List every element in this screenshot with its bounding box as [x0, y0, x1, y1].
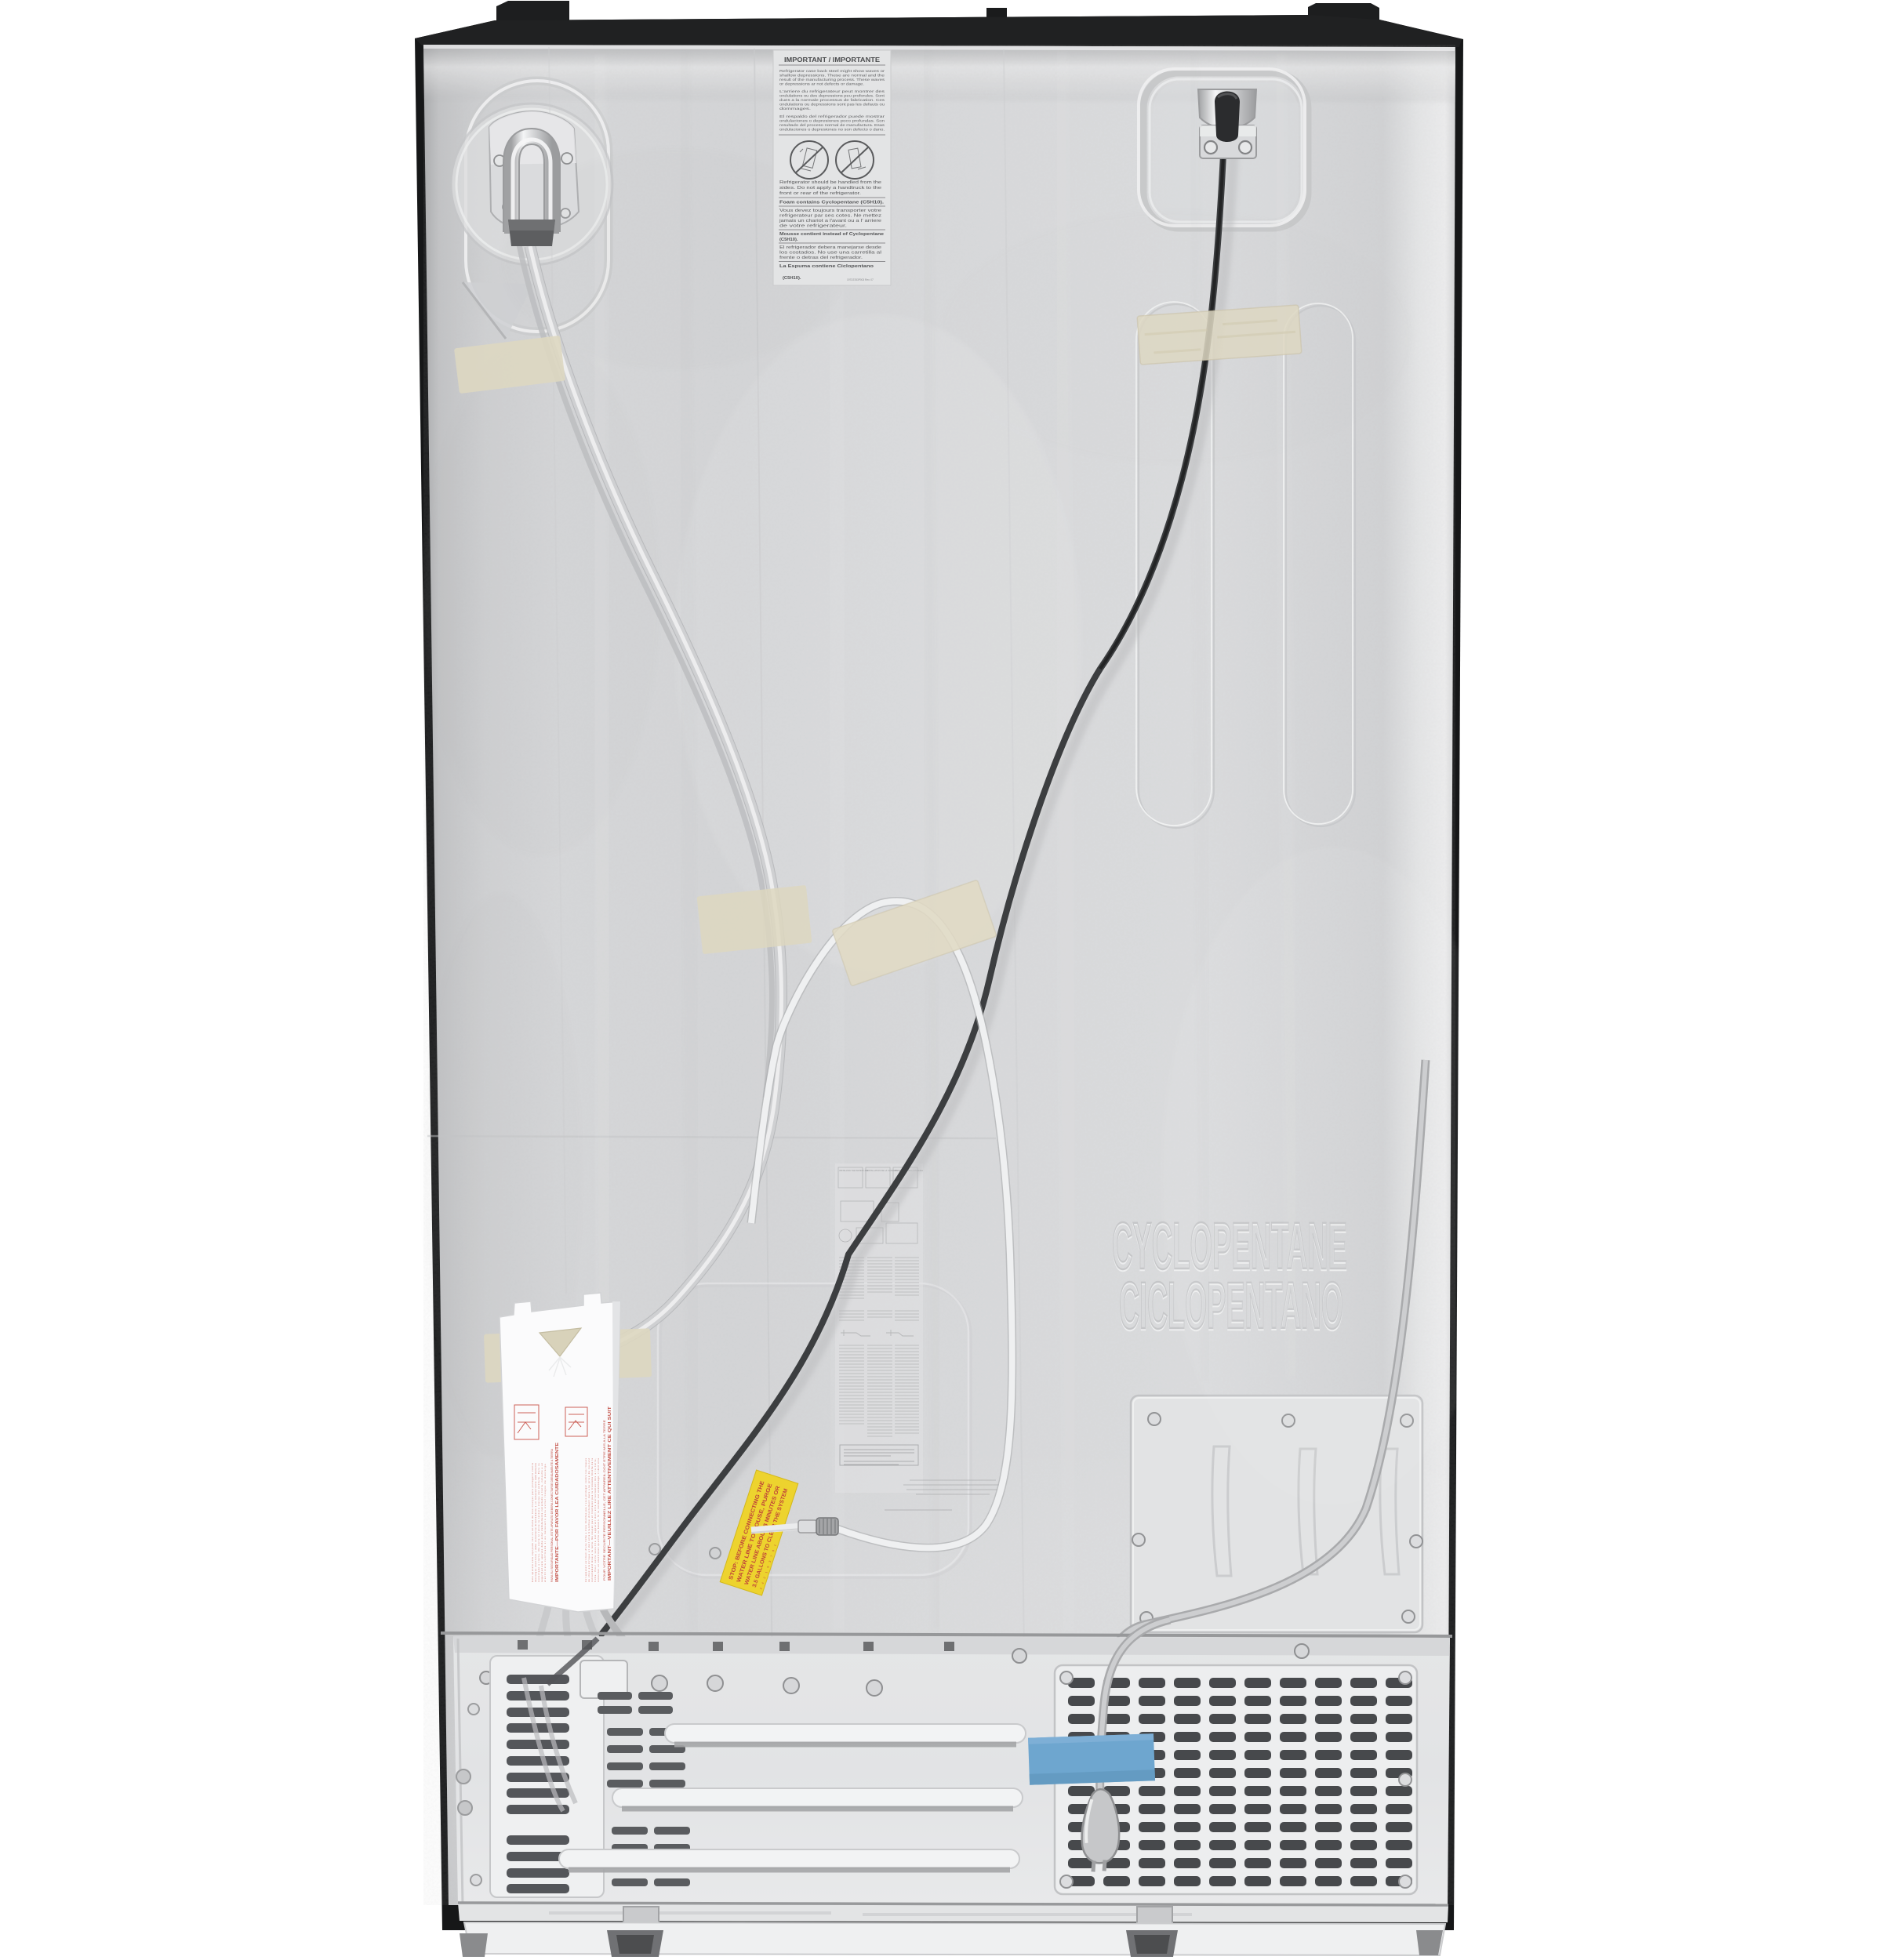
svg-text:ondulaciones o depresiones no: ondulaciones o depresiones no son defect… [779, 128, 885, 132]
svg-text:jamais un chariot a l'avant ou: jamais un chariot a l'avant ou a l' arri… [779, 219, 882, 223]
svg-text:de votre refrigerateur.: de votre refrigerateur. [779, 224, 847, 229]
svg-text:descargas electricas y debe co: descargas electricas y debe conectarse d… [534, 1463, 537, 1583]
svg-text:Mousse contient instead of Cyc: Mousse contient instead of Cyclopentane [779, 232, 885, 237]
svg-text:Cet appareil est muni d'une fi: Cet appareil est muni d'une fiche a troi… [584, 1457, 587, 1582]
svg-text:L'arriere du refrigerateur peu: L'arriere du refrigerateur peut montrer … [779, 89, 885, 93]
svg-text:Foam contains Cyclopentane (C5: Foam contains Cyclopentane (C5H10). [779, 201, 884, 205]
svg-text:El refrigerador debera manejar: El refrigerador debera manejarse desde [779, 245, 881, 250]
svg-text:El respaldo del refrigerador p: El respaldo del refrigerador puede mostr… [779, 114, 885, 118]
svg-text:Refrigerator should be handled: Refrigerator should be handled from the [779, 180, 881, 185]
svg-text:(C5H10).: (C5H10). [783, 276, 801, 281]
svg-text:ondulaciones o depresiones poc: ondulaciones o depresiones poco profunda… [779, 119, 885, 123]
svg-text:PARA SU SEGURIDAD PERSONAL, ES: PARA SU SEGURIDAD PERSONAL, ESTE APARATO… [550, 1448, 554, 1582]
svg-text:dommages.: dommages. [779, 107, 811, 111]
svg-text:refrigerateur par ses cotes. N: refrigerateur par ses cotes. Ne mettez [779, 214, 882, 219]
svg-text:ondulations ou depressions son: ondulations ou depressions sont pas les … [779, 103, 885, 107]
svg-text:Este aparato esta equipado con: Este aparato esta equipado con un enchuf… [531, 1463, 534, 1583]
svg-text:conectado a tierra. No corte n: conectado a tierra. No corte ni retire l… [537, 1463, 540, 1583]
svg-text:ondulations ou des depressions: ondulations ou des depressions peu profo… [779, 94, 885, 98]
svg-text:IMPORTANT / IMPORTANTE: IMPORTANT / IMPORTANTE [784, 56, 881, 64]
svg-text:dues a la normale processus de: dues a la normale processus de fabricati… [779, 98, 885, 102]
svg-text:result of the manufacturing pr: result of the manufacturing process. The… [779, 78, 885, 82]
svg-text:resultado del proceso normal d: resultado del proceso normal de manufact… [779, 123, 885, 127]
svg-text:correctement mise a la terre.: correctement mise a la terre. Ne coupez … [590, 1458, 594, 1583]
svg-text:(C5H10).: (C5H10). [779, 238, 798, 242]
svg-text:IMPORTANT—VEUILLEZ LIRE ATTENT: IMPORTANT—VEUILLEZ LIRE ATTENTIVEMENT CE… [608, 1406, 612, 1581]
svg-text:fiche. Pour votre securite cet: fiche. Pour votre securite cet appareil … [594, 1458, 597, 1582]
svg-text:or depressions ar not defects: or depressions ar not defects or damage. [779, 82, 864, 86]
svg-text:shallow depressions. These are: shallow depressions. These are normal an… [779, 74, 885, 78]
svg-text:IMPORTANTE—POR FAVOR LEA CUIDA: IMPORTANTE—POR FAVOR LEA CUIDADOSAMENTE [555, 1442, 560, 1582]
svg-text:Refrigerator case back steel m: Refrigerator case back steel might show … [779, 69, 885, 73]
svg-text:197D3783P003 Rev. 07: 197D3783P003 Rev. 07 [847, 278, 874, 281]
svg-text:sides. Do not apply a handtruc: sides. Do not apply a handtruck to the [779, 186, 881, 191]
svg-text:INSTALLING THE WATER LINE: INSTALLING THE WATER LINE [839, 1169, 868, 1172]
svg-text:los costados. No use una carre: los costados. No use una carretilla al [779, 251, 881, 256]
svg-text:La Espuma contiene Ciclopentan: La Espuma contiene Ciclopentano [779, 264, 874, 269]
svg-text:electricista calificado si es: electricista calificado si es necesario … [543, 1463, 547, 1582]
svg-text:front or rear of the refrigera: front or rear of the refrigerator. [779, 191, 861, 196]
svg-text:seguridad este aparato debe es: seguridad este aparato debe estar debida… [540, 1463, 543, 1583]
svg-text:de choc electrique et doit etr: de choc electrique et doit etre branchee… [587, 1458, 590, 1582]
svg-text:POUR VOTRE SECURITE PERSONNELL: POUR VOTRE SECURITE PERSONNELLE, CET APP… [603, 1419, 606, 1581]
svg-text:Vous devez toujours transporte: Vous devez toujours transporter votre [779, 209, 881, 213]
svg-text:consultez un electricien quali: consultez un electricien qualifie au bes… [597, 1458, 600, 1583]
svg-text:frente o detras del refrigerad: frente o detras del refrigerador. [779, 256, 863, 260]
